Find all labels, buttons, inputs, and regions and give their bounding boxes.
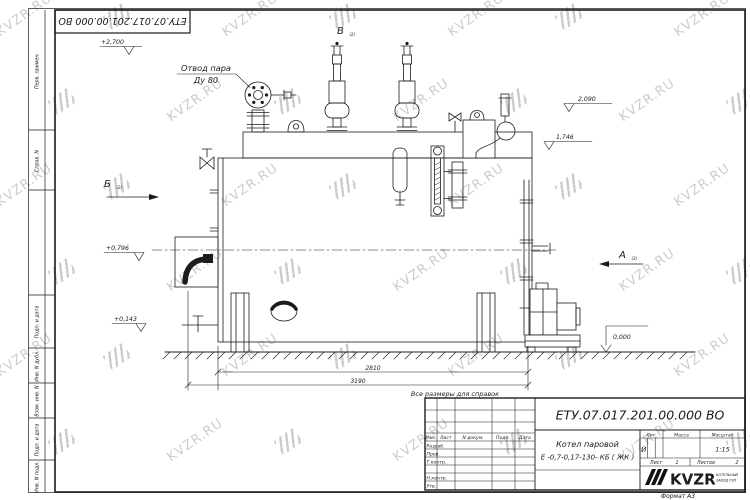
drawing-canvas: Перв. примен. Справ. N Подп. и дата Инв.… (0, 0, 750, 500)
drain-valve (182, 316, 218, 332)
control-box (463, 111, 495, 159)
steam-outlet-note-line1: Отвод пара (181, 63, 231, 73)
col-data: Дата (518, 435, 531, 441)
row-utv: Утв. (427, 484, 437, 490)
drawing-sheet: KVZR.RUKVZR.RUKVZR.RUKVZR.RUKVZR.RUKVZR.… (0, 0, 750, 500)
view-b-arrowhead (149, 194, 159, 200)
elevation-zero: 0,000 (613, 334, 631, 341)
sheet-value: 1 (675, 460, 678, 466)
steam-outlet-note-line2: Ду 80 (193, 75, 218, 85)
support-legs (231, 293, 495, 352)
level-column-2 (444, 162, 467, 208)
titleblock-doc-number: ЕТУ.07.017.201.00.000 ВО (556, 408, 725, 423)
vent-valve (449, 113, 461, 132)
scale-label: Масштаб (712, 432, 734, 438)
frame-col-inv-dubl: Инв. N дубл. (35, 350, 41, 381)
frame-col-sprav-n: Справ. N (35, 150, 41, 172)
front-valve (200, 149, 214, 169)
sheets-value: 2 (735, 460, 738, 466)
elevation-1746: 1,746 (556, 134, 574, 141)
water-level-gauge (431, 146, 444, 216)
steam-outlet-valve (245, 82, 296, 132)
gauge-cylinder (393, 148, 407, 205)
ground-hatch (163, 352, 687, 359)
feed-stub-pipe (532, 243, 550, 254)
view-label-a-ref: (2) (632, 256, 638, 261)
col-doc: N докум. (462, 435, 483, 441)
elevation-top: +2,700 (101, 39, 124, 46)
sheets-label: Листов (696, 460, 715, 466)
view-label-v-ref: (2) (350, 32, 356, 37)
boiler-shell (210, 132, 532, 342)
safety-valve-1 (325, 42, 349, 131)
logo-sub-line1: КОТЕЛЬНЫЙ (716, 472, 738, 477)
row-prov: Пров. (427, 452, 440, 458)
product-name-line1: Котел паровой (556, 440, 619, 449)
frame-col-podp-data-2: Подп. и дата (35, 424, 41, 457)
elevation-0143: +0,143 (114, 316, 137, 323)
elevation-0796: +0,796 (106, 245, 129, 252)
frame-col-podp-data-1: Подп. и дата (35, 306, 41, 339)
manhole (271, 301, 297, 321)
row-razrab: Разраб. (427, 444, 445, 450)
frame-col-perv-primen: Перв. примен. (35, 53, 41, 89)
lit-value: И (641, 446, 647, 454)
boiler-general-view (100, 42, 695, 390)
view-label-v: В (337, 26, 344, 37)
view-arrows (107, 194, 643, 267)
motor (557, 303, 576, 330)
frame-col-inv-podl: Инв. N подл. (35, 461, 41, 493)
view-label-a: А (618, 250, 626, 261)
view-label-b-ref: (2) (117, 185, 123, 190)
row-nkontr: Н.контр. (427, 476, 448, 482)
blower-unit (525, 283, 580, 352)
logo-sub-line2: ЗАВОД РЭП (716, 479, 737, 483)
lifting-lug-1 (288, 121, 304, 133)
view-a-arrowhead (599, 261, 609, 267)
reference-note: Все размеры для справок (411, 390, 499, 398)
col-list: Лист (439, 435, 452, 441)
sheet-label: Лист (649, 460, 662, 466)
row-tkontr: Т.контр. (427, 460, 447, 466)
product-name-line2: Е -0,7-0,17-130- КБ ( ЖК ) (541, 454, 635, 462)
col-izm: Изм. (425, 435, 436, 441)
kvzr-logo-stripes-icon (645, 469, 668, 485)
mass-label: Масса (674, 432, 689, 438)
dim-2810: 2810 (365, 365, 380, 372)
view-label-b: Б (104, 179, 111, 190)
kvzr-logo-text: KVZR (670, 471, 716, 489)
burner-box (175, 237, 218, 287)
frame-column-labels: Перв. примен. Справ. N Подп. и дата Инв.… (35, 53, 41, 493)
title-block-texts: ЕТУ.07.017.201.00.000 ВО Котел паровой Е… (425, 408, 738, 500)
col-podp: Подп. (496, 435, 510, 441)
scale-value: 1:15 (715, 446, 730, 454)
format-label: Формат А3 (661, 493, 695, 500)
lit-label: Лит. (645, 432, 657, 438)
corner-docnumber-inverted: ЕТУ.07.017.201.00.000 ВО (58, 15, 187, 26)
elevation-2090: 2,090 (578, 96, 596, 103)
safety-valve-2 (395, 42, 419, 131)
frame-col-vzam-inv: Взам. инв. N (35, 385, 41, 417)
siphon-loop (497, 122, 515, 140)
dimension-lines (185, 291, 531, 390)
dim-3190: 3190 (350, 378, 365, 385)
